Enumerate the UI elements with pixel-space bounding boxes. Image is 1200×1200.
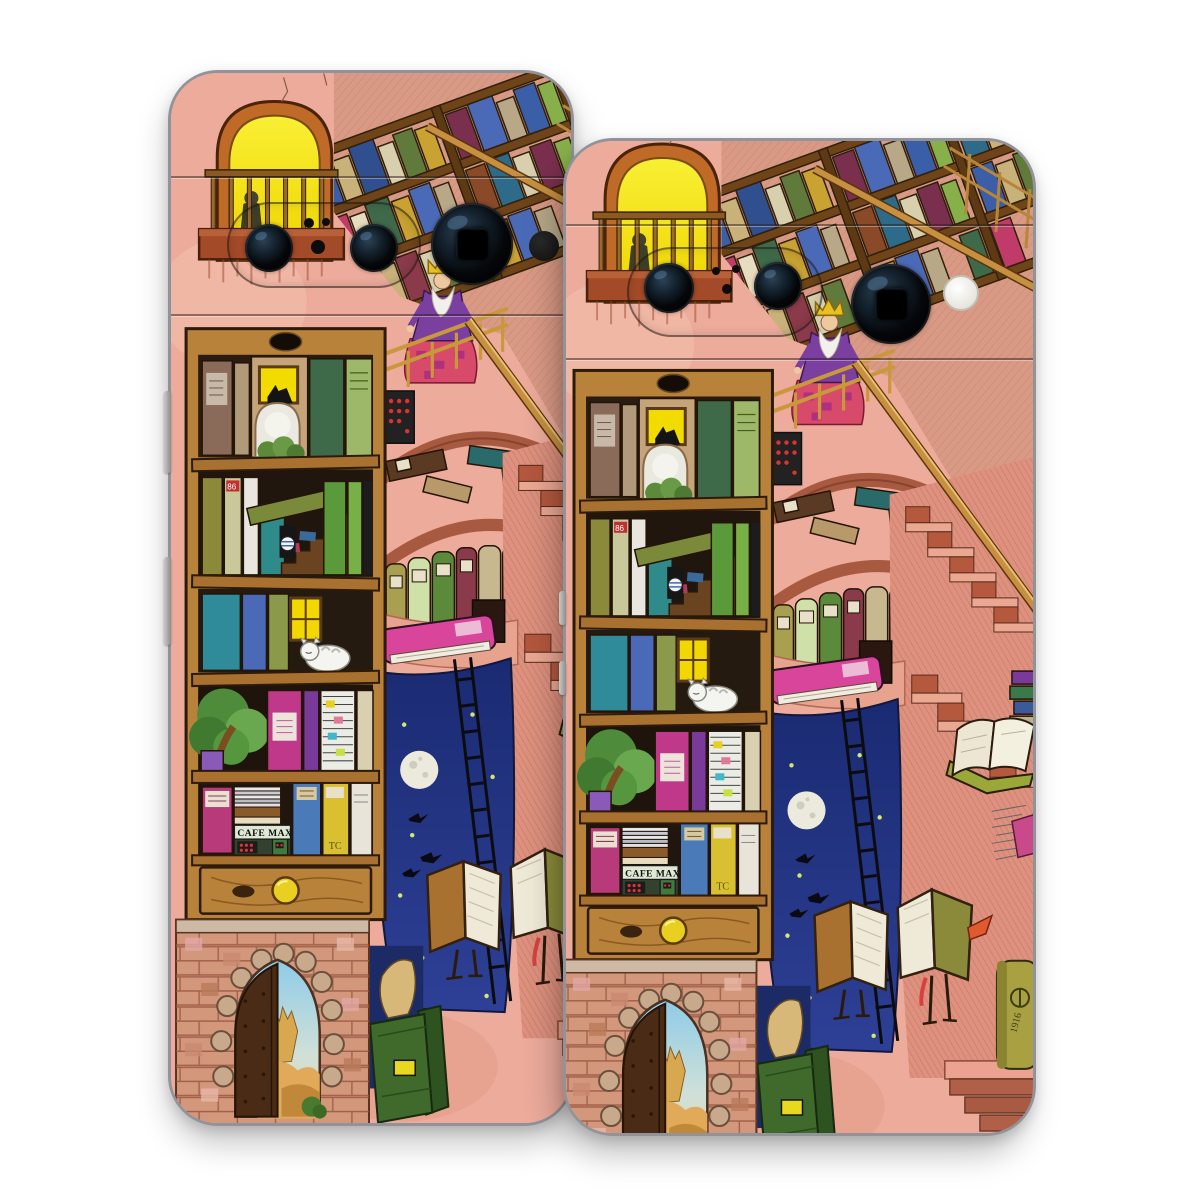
camera-sensor-dot <box>732 265 740 273</box>
phone-skin-right <box>563 138 1036 1136</box>
camera-sensor-dot <box>322 218 330 226</box>
camera-flash <box>943 275 979 311</box>
camera-lens-wide <box>644 263 694 313</box>
phone-skin-left <box>168 70 574 1126</box>
camera-sensor-dot <box>311 240 325 254</box>
camera-lens-wide <box>245 224 293 272</box>
volume-button <box>559 591 566 625</box>
camera-visor-seam-top <box>171 176 571 178</box>
camera-lens-ultrawide <box>350 224 398 272</box>
camera-flash <box>529 231 559 261</box>
volume-button <box>164 391 171 473</box>
power-button <box>559 661 566 695</box>
camera-lens-telephoto <box>431 203 513 285</box>
camera-lens-telephoto <box>851 264 931 344</box>
power-button <box>164 557 171 645</box>
camera-sensor-dot <box>722 284 732 294</box>
camera-visor-seam-bottom <box>566 358 1033 360</box>
camera-lens-ultrawide <box>754 262 802 310</box>
camera-sensor-dot <box>304 218 314 228</box>
camera-sensor-dot <box>712 267 720 275</box>
camera-visor-seam-bottom <box>171 314 571 316</box>
camera-visor-seam-top <box>566 224 1033 226</box>
product-photo: 1916 <box>0 0 1200 1200</box>
